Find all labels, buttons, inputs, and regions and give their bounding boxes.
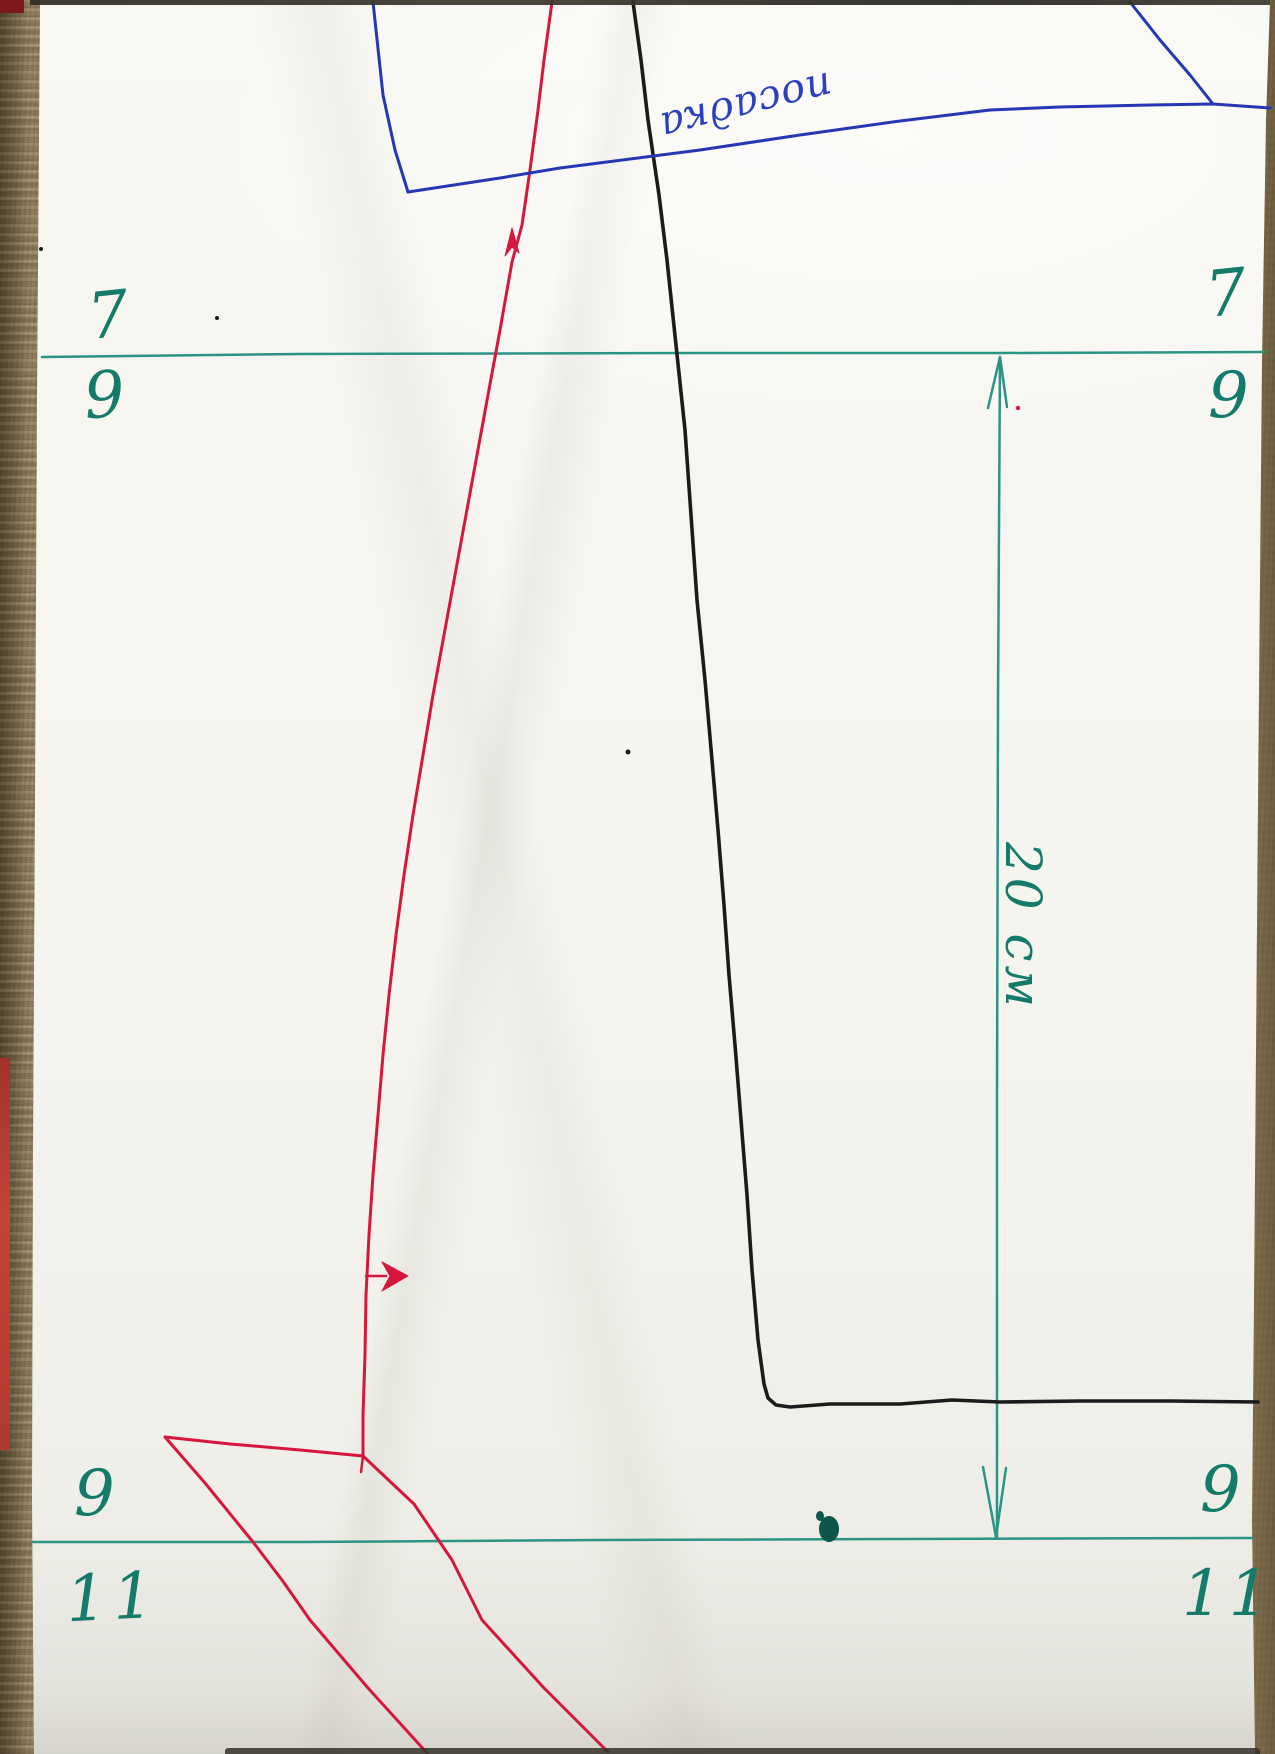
scan-bottom-edge — [225, 1748, 1260, 1754]
red-flap-right-edge — [363, 1456, 608, 1752]
blue-left-line — [373, 2, 408, 192]
ink-blot-small — [816, 1511, 824, 1521]
blue-diagonal-line — [1130, 2, 1213, 104]
size-label-top-left-7: 7 — [85, 282, 132, 350]
black-speck-top — [215, 316, 219, 320]
green-dimension-arrowhead-bottom — [983, 1467, 1006, 1537]
red-flap-top-edge — [165, 1437, 363, 1456]
red-junction-tick — [361, 1456, 363, 1472]
red-flap-left-edge — [165, 1437, 427, 1753]
size-label-bottom-right-9: 9 — [1200, 1458, 1241, 1522]
red-side-seam-line — [363, 2, 552, 1456]
size-label-bottom-left-11: 11 — [64, 1564, 161, 1633]
black-speck-mid — [626, 750, 631, 755]
size-label-bottom-right-11: 11 — [1182, 1562, 1275, 1626]
size-label-top-left-9: 9 — [82, 363, 127, 430]
black-speck-left — [39, 247, 43, 251]
red-corner-fragment — [0, 0, 24, 13]
green-dimension-arrowhead-top — [988, 357, 1007, 408]
green-bottom-guide-line — [33, 1538, 1252, 1542]
dimension-label-20cm: 20 см — [998, 842, 1048, 1011]
scan-top-edge — [30, 0, 1270, 5]
red-speck — [1016, 406, 1020, 410]
pattern-drawing — [0, 0, 1275, 1754]
black-seam-line — [633, 2, 1258, 1407]
size-label-bottom-left-9: 9 — [74, 1462, 115, 1526]
size-label-top-right-9: 9 — [1208, 364, 1249, 428]
size-label-top-right-7: 7 — [1203, 260, 1250, 328]
green-top-guide-line — [42, 352, 1264, 357]
scanned-pattern-sheet: { "labels": { "top_left_upper": "7", "to… — [0, 0, 1275, 1754]
